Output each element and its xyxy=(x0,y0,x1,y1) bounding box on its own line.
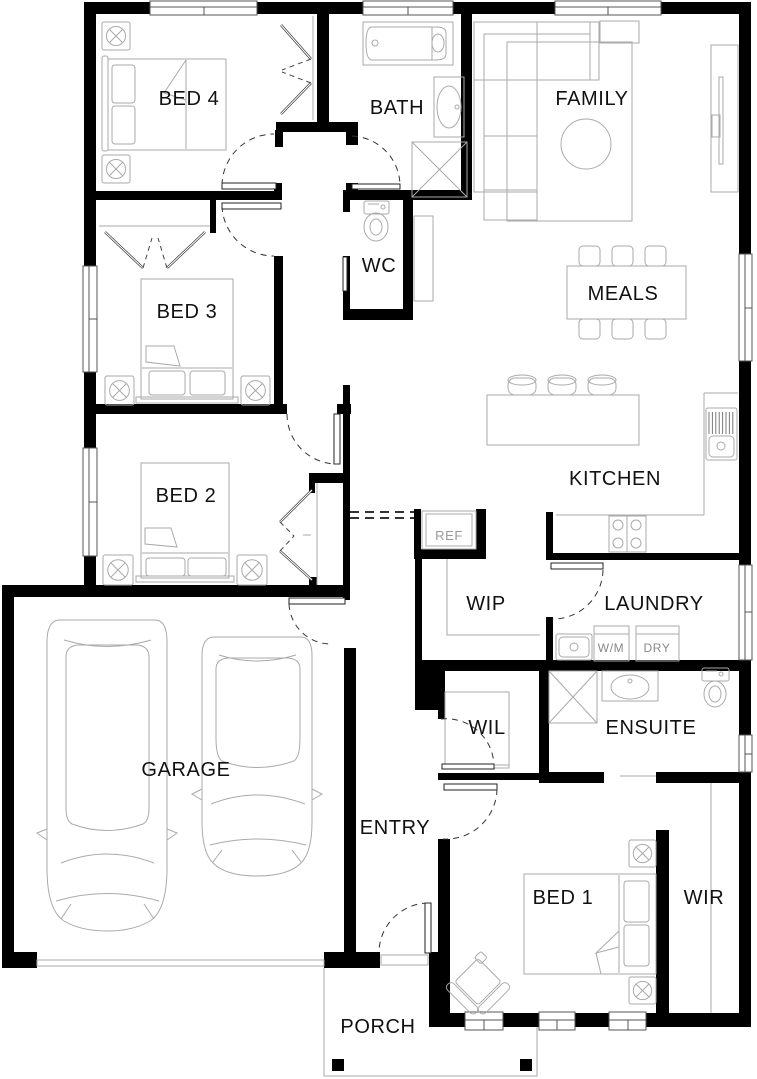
svg-text:GARAGE: GARAGE xyxy=(141,759,230,781)
svg-text:W/M: W/M xyxy=(598,641,624,655)
svg-text:BED 3: BED 3 xyxy=(157,301,218,323)
svg-text:FAMILY: FAMILY xyxy=(555,88,628,110)
svg-text:BED 2: BED 2 xyxy=(156,485,217,507)
svg-text:WIP: WIP xyxy=(466,593,506,615)
svg-text:WC: WC xyxy=(362,255,397,277)
svg-text:BATH: BATH xyxy=(370,97,424,119)
svg-text:MEALS: MEALS xyxy=(588,283,659,305)
svg-text:KITCHEN: KITCHEN xyxy=(569,468,661,490)
svg-text:PORCH: PORCH xyxy=(340,1016,415,1038)
svg-text:WIR: WIR xyxy=(684,887,725,909)
svg-text:ENSUITE: ENSUITE xyxy=(606,717,697,739)
svg-text:DRY: DRY xyxy=(644,641,671,655)
svg-text:ENTRY: ENTRY xyxy=(360,817,430,839)
svg-text:REF: REF xyxy=(435,528,463,543)
svg-text:BED 1: BED 1 xyxy=(533,887,594,909)
svg-text:LAUNDRY: LAUNDRY xyxy=(604,593,703,615)
svg-text:BED 4: BED 4 xyxy=(159,88,220,110)
svg-text:WIL: WIL xyxy=(468,717,505,739)
